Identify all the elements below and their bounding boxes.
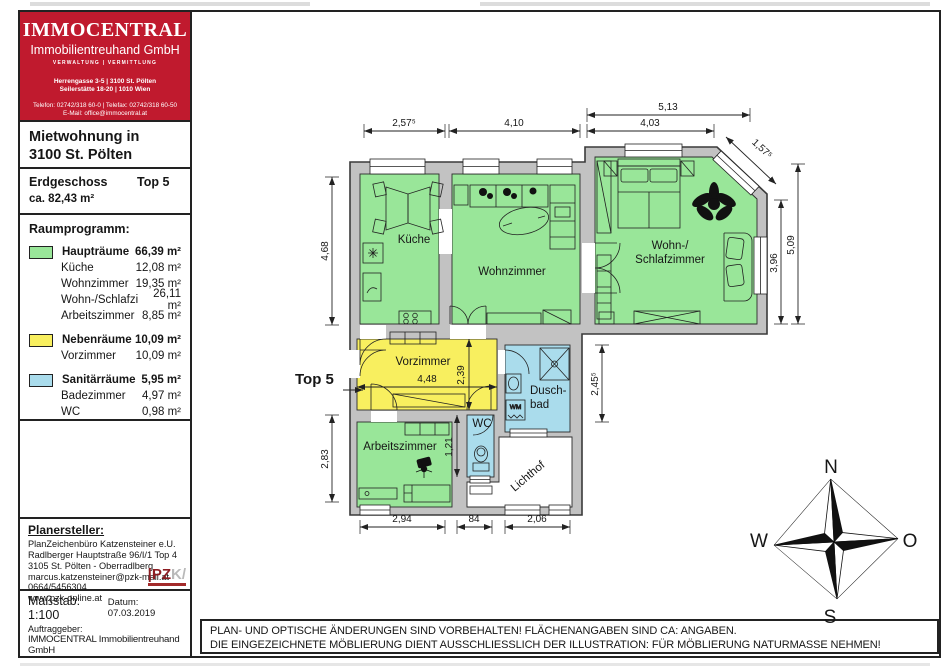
legend-room-row: Arbeitszimmer 8,85 m²	[61, 308, 181, 324]
company-phone: Telefon: 02742/318 60-0 | Telefax: 02742…	[20, 102, 190, 109]
empty-panel	[20, 421, 190, 519]
company-address-2: Seilerstätte 18-20 | 1010 Wien	[20, 86, 190, 93]
window-wohnzimmer-top-2	[537, 159, 572, 174]
dim-bottom-corridor: 84	[468, 514, 480, 525]
unit-label: Top 5	[137, 175, 169, 189]
label-kueche: Küche	[398, 234, 431, 246]
label-arbeitszimmer: Arbeitszimmer	[363, 441, 437, 453]
legend-group-sanitaerraeume: Sanitärräume 5,95 m²	[29, 372, 181, 388]
listing-title-box: Mietwohnung in 3100 St. Pölten	[20, 122, 190, 169]
window-arbeitszimmer-bottom	[360, 505, 390, 515]
window-schlafzimmer-top	[625, 144, 682, 157]
legend-group-nebenraeume: Nebenräume 10,09 m²	[29, 332, 181, 348]
pzk-logo: |PZK/	[148, 567, 186, 586]
label-duschbad-2: bad	[530, 399, 549, 411]
dim-bottom-arbeitszimmer: 2,94	[392, 514, 412, 525]
room-program-legend: Raumprogramm: Haupträume 66,39 m² Küche …	[20, 215, 190, 421]
label-duschbad-1: Dusch-	[530, 385, 567, 397]
window-wc-niche	[470, 476, 490, 483]
legend-group-area: 5,95 m²	[141, 374, 181, 386]
dim-top-schlafzimmer: 4,03	[640, 118, 660, 129]
client-name: IMMOCENTRAL Immobilientreuhand GmbH	[28, 634, 182, 656]
dim-diagonal: 1,57⁵	[749, 137, 774, 161]
window-wohnzimmer-top-1	[463, 159, 499, 174]
scan-artifact	[480, 2, 930, 6]
dim-top-kueche: 2,57⁵	[392, 118, 416, 129]
compass-south: S	[824, 607, 837, 627]
legend-group-name: Nebenräume	[62, 334, 135, 346]
disclaimer-line2: DIE EINGEZEICHNETE MÖBLIERUNG DIENT AUSS…	[210, 638, 929, 652]
label-wohn-schlafzimmer-2: Schlafzimmer	[635, 254, 705, 266]
legend-group-area: 66,39 m²	[135, 246, 181, 258]
total-area: ca. 82,43 m²	[29, 193, 181, 205]
scale-box: Maßstab: 1:100 Datum: 07.03.2019 Auftrag…	[20, 591, 190, 656]
dim-vorzimmer-height: 2,39	[456, 365, 467, 385]
floor-plan: WM	[287, 97, 817, 547]
planner-line: Radlberger Hauptstraße 96/I/1 Top 4	[28, 550, 182, 561]
legend-group-area: 10,09 m²	[135, 334, 181, 346]
legend-swatch-blue	[29, 374, 53, 387]
plan-sheet: IMMOCENTRAL Immobilientreuhand GmbH VERW…	[18, 10, 941, 658]
dim-bottom-lichthof: 2,06	[527, 514, 547, 525]
listing-title-line1: Mietwohnung in	[29, 128, 181, 146]
company-name: IMMOCENTRAL	[20, 19, 190, 42]
legend-group-name: Haupträume	[62, 246, 135, 258]
company-logo-box: IMMOCENTRAL Immobilientreuhand GmbH VERW…	[20, 12, 190, 122]
legend-group-hauptraeume: Haupträume 66,39 m²	[29, 244, 181, 260]
legend-swatch-yellow	[29, 334, 53, 347]
compass-north: N	[824, 457, 838, 478]
dim-left-kueche: 4,68	[320, 241, 331, 261]
legend-room-row: Küche 12,08 m²	[61, 260, 181, 276]
dim-top-wohnzimmer: 4,10	[504, 118, 524, 129]
scan-artifact	[20, 663, 930, 666]
planner-line: PlanZeichenbüro Katzensteiner e.U.	[28, 539, 182, 550]
dim-right-outer: 5,09	[786, 235, 797, 255]
company-address-1: Herrengasse 3-5 | 3100 St. Pölten	[20, 78, 190, 85]
title-block-column: IMMOCENTRAL Immobilientreuhand GmbH VERW…	[20, 12, 192, 656]
planner-box: Planersteller: PlanZeichenbüro Katzenste…	[20, 519, 190, 591]
legend-heading: Raumprogramm:	[29, 222, 181, 236]
dim-duschbad: 2,45⁵	[590, 372, 601, 396]
company-tagline: VERWALTUNG | VERMITTLUNG	[20, 60, 190, 66]
legend-room-row: WC 0,98 m²	[61, 404, 181, 420]
scale-value: Maßstab: 1:100	[28, 594, 108, 622]
planner-heading: Planersteller:	[28, 523, 182, 537]
compass-star-icon	[771, 476, 901, 602]
legend-room-row: Wohn-/Schlafzi 26,11 m²	[61, 292, 181, 308]
client-label: Auftraggeber:	[28, 624, 182, 634]
label-wohn-schlafzimmer-1: Wohn-/	[652, 240, 690, 252]
plan-date: Datum: 07.03.2019	[108, 597, 182, 619]
label-wc: WC	[472, 418, 491, 430]
unit-marker-label: Top 5	[295, 371, 334, 388]
listing-subtitle-box: Erdgeschoss Top 5 ca. 82,43 m²	[20, 169, 190, 215]
floor-label: Erdgeschoss	[29, 175, 108, 189]
legend-group-name: Sanitärräume	[62, 374, 141, 386]
legend-room-row: Vorzimmer 10,09 m²	[61, 348, 181, 364]
compass-rose: N W O S	[750, 457, 935, 627]
window-duschbad-lichthof	[510, 429, 547, 437]
window-lichthof-bottom-2	[549, 505, 570, 515]
legend-swatch-green	[29, 246, 53, 259]
compass-east: O	[903, 531, 918, 552]
compass-west: W	[750, 531, 768, 552]
room-kueche	[360, 174, 439, 324]
company-subname: Immobilientreuhand GmbH	[20, 43, 190, 57]
company-email: E-Mail: office@immocentral.at	[20, 110, 190, 117]
dim-wc-height: 1,21	[444, 437, 455, 457]
washing-machine-label: WM	[510, 404, 522, 411]
scan-artifact	[30, 2, 310, 6]
dim-right-inner: 3,96	[769, 253, 780, 273]
dim-vorzimmer-width: 4,48	[417, 374, 437, 385]
label-vorzimmer: Vorzimmer	[396, 356, 451, 368]
window-schlafzimmer-right	[754, 237, 767, 294]
dim-left-arbeitszimmer: 2,83	[320, 449, 331, 469]
legend-room-row: Badezimmer 4,97 m²	[61, 388, 181, 404]
window-kueche-top	[370, 159, 425, 174]
listing-title-line2: 3100 St. Pölten	[29, 146, 181, 164]
label-wohnzimmer: Wohnzimmer	[478, 266, 546, 278]
dim-top-total: 5,13	[658, 102, 678, 113]
document-page: IMMOCENTRAL Immobilientreuhand GmbH VERW…	[0, 0, 950, 672]
